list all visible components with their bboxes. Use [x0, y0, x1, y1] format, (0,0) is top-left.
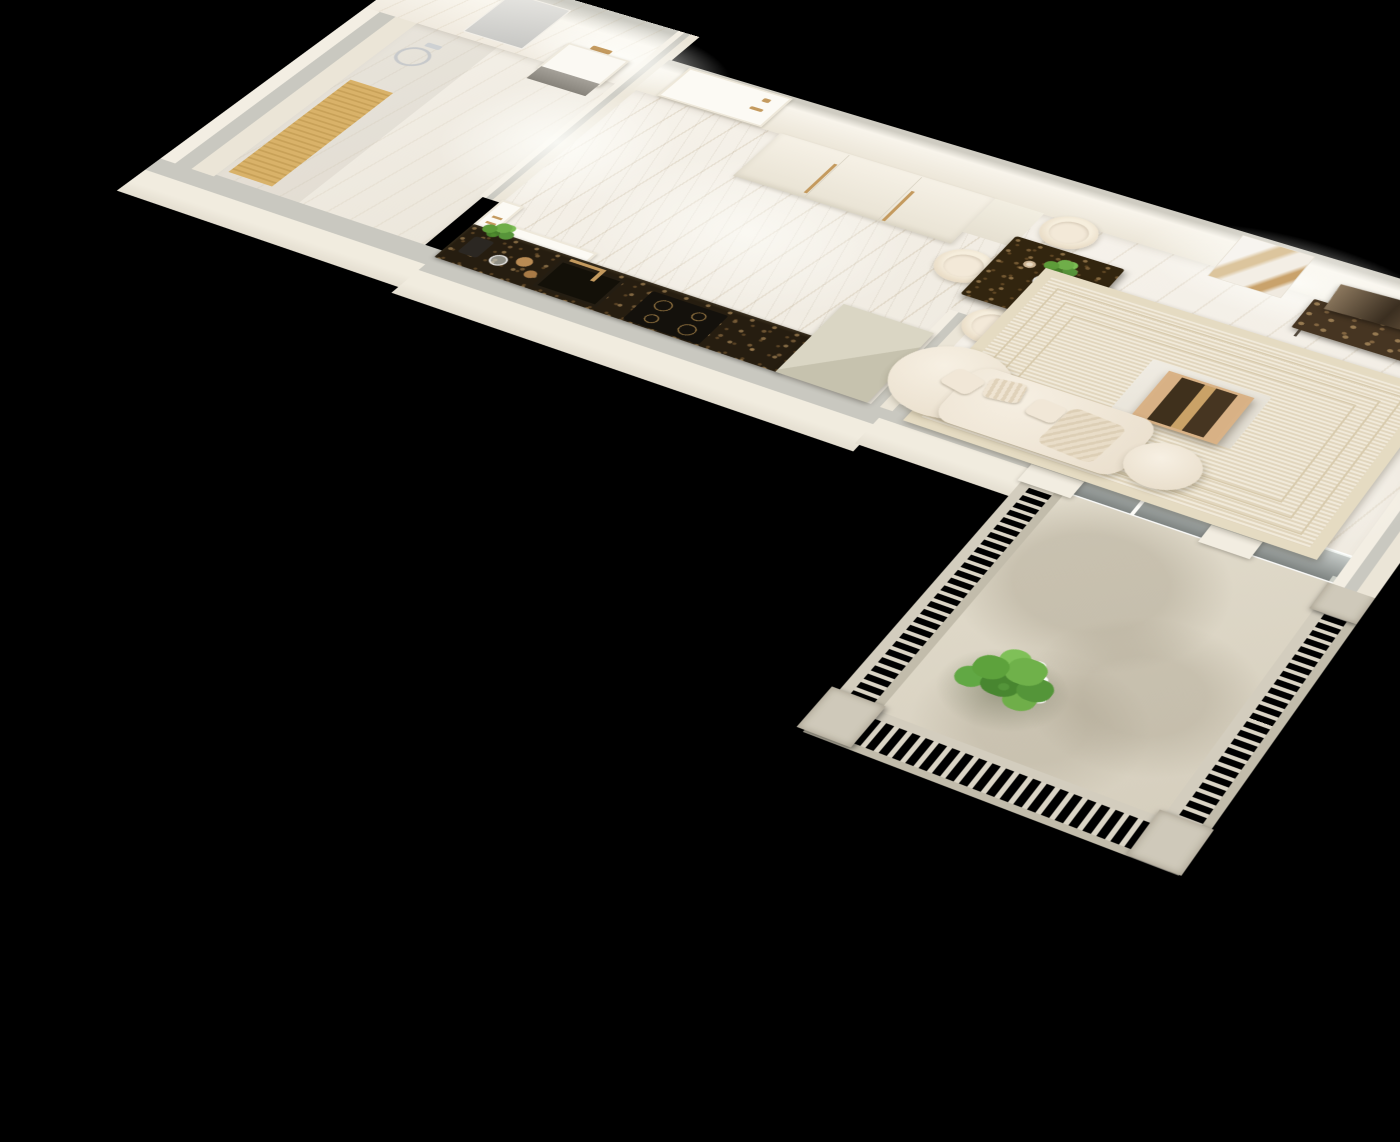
render-canvas [0, 0, 1400, 1142]
apartment-3d-floorplan [0, 0, 1400, 1096]
